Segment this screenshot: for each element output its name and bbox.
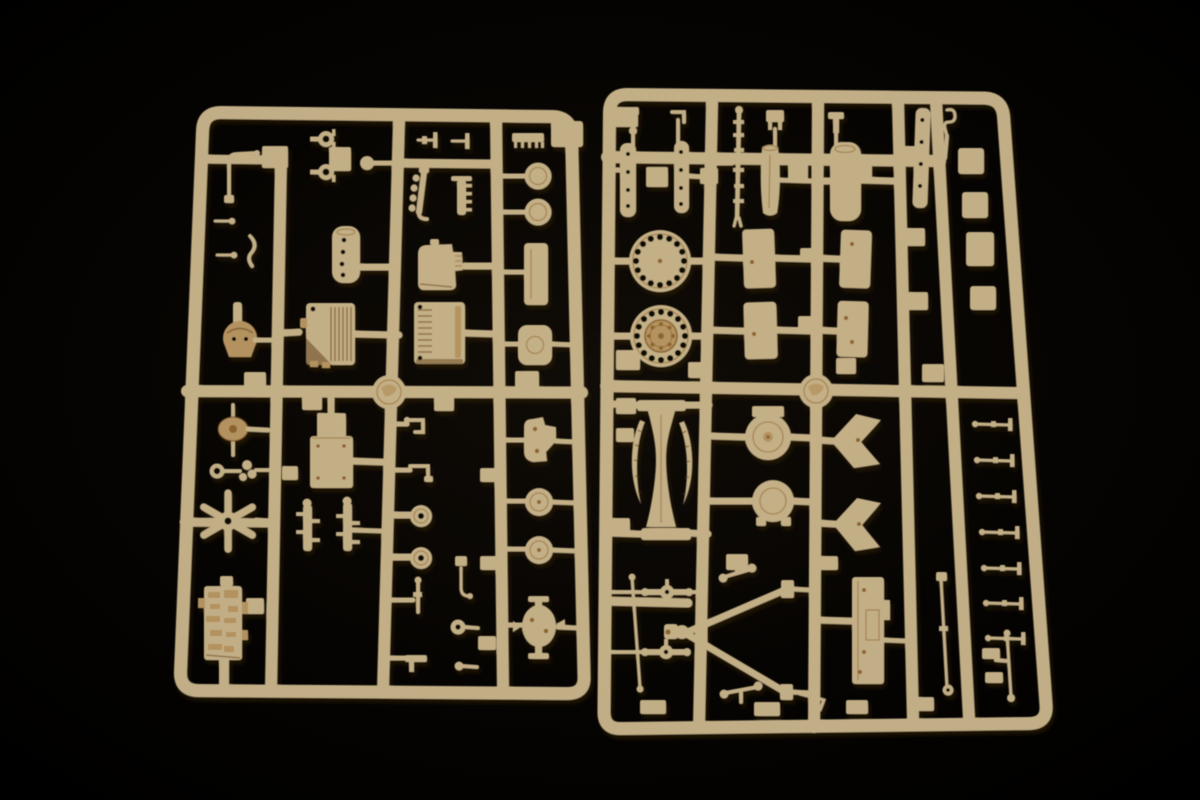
sprue-photo: Two tan injection-molded plastic model k… xyxy=(0,0,1200,800)
part-perforated-cylinder xyxy=(332,226,360,283)
photo-canvas: Two tan injection-molded plastic model k… xyxy=(0,0,1200,800)
part-molding-stamp-left xyxy=(372,375,406,409)
part-engine-block-left xyxy=(300,303,355,368)
part-molding-stamp-right xyxy=(799,374,833,408)
part-road-wheel-hub xyxy=(630,305,692,367)
part-road-wheel-plain xyxy=(629,230,691,292)
part-engine-block-right xyxy=(414,302,465,364)
